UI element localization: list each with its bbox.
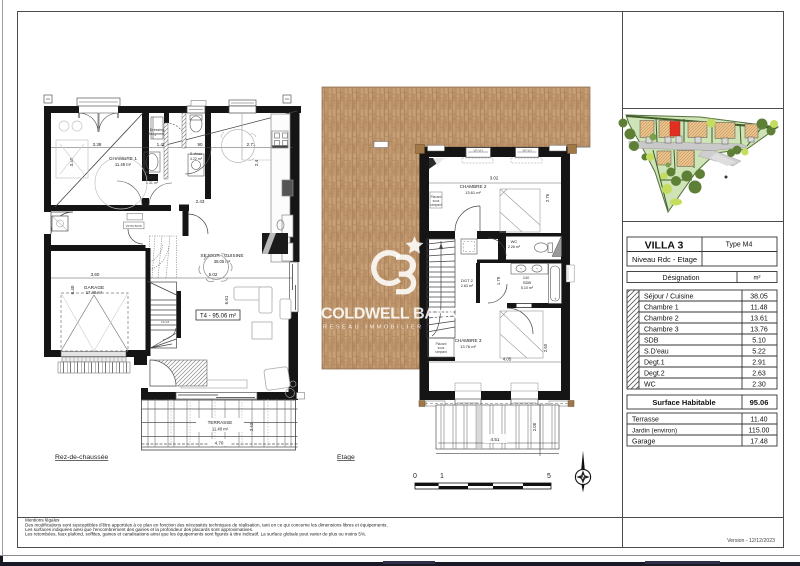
svg-text:Degt.1: Degt.1 xyxy=(644,359,665,366)
svg-text:2.26 m²: 2.26 m² xyxy=(508,245,521,249)
svg-text:Chambre 3: Chambre 3 xyxy=(644,326,679,333)
svg-text:13.61: 13.61 xyxy=(750,315,768,322)
svg-text:2.43: 2.43 xyxy=(196,199,205,204)
svg-text:13.61 m²: 13.61 m² xyxy=(465,190,481,195)
svg-text:CHAMBRE 2: CHAMBRE 2 xyxy=(460,184,487,189)
svg-text:VILLA 3: VILLA 3 xyxy=(645,240,684,252)
svg-text:2.63: 2.63 xyxy=(752,370,766,377)
svg-text:m²: m² xyxy=(754,276,761,282)
svg-text:11.48 m²: 11.48 m² xyxy=(115,162,132,167)
svg-text:Garage: Garage xyxy=(632,438,655,445)
svg-text:WC: WC xyxy=(511,239,518,244)
svg-text:WC: WC xyxy=(644,381,656,388)
svg-text:+: + xyxy=(520,267,522,271)
svg-text:11.40: 11.40 xyxy=(751,416,768,423)
svg-text:3.02: 3.02 xyxy=(490,176,499,181)
svg-text:Chambre 1: Chambre 1 xyxy=(644,304,679,311)
svg-text:Type M4: Type M4 xyxy=(726,242,753,249)
svg-text:DGT 2: DGT 2 xyxy=(461,278,473,283)
svg-text:RESEAU IMMOBILIER: RESEAU IMMOBILIER xyxy=(323,324,424,330)
svg-text:Séjour / Cuisine: Séjour / Cuisine xyxy=(644,293,694,300)
svg-text:Jardin (environ): Jardin (environ) xyxy=(632,427,677,434)
svg-text:3.38: 3.38 xyxy=(93,142,102,147)
svg-text:CHAMBRE 3: CHAMBRE 3 xyxy=(455,338,482,343)
svg-text:16x18: 16x18 xyxy=(161,320,170,324)
svg-text:2.4: 2.4 xyxy=(254,159,259,166)
svg-text:2.63 m²: 2.63 m² xyxy=(461,284,474,288)
svg-text:17.48: 17.48 xyxy=(750,438,768,445)
svg-text:1.31 m²: 1.31 m² xyxy=(146,181,159,185)
svg-text:T4 - 95.06 m²: T4 - 95.06 m² xyxy=(200,314,236,320)
svg-text:115.00: 115.00 xyxy=(749,427,770,434)
svg-text:6.40: 6.40 xyxy=(70,285,75,294)
svg-text:2.60: 2.60 xyxy=(543,343,548,352)
svg-text:4.22 m²: 4.22 m² xyxy=(190,157,203,161)
svg-text:11.48: 11.48 xyxy=(751,304,768,311)
svg-text:5.10: 5.10 xyxy=(752,337,766,344)
svg-text:13.76: 13.76 xyxy=(750,326,768,333)
svg-text:3.60: 3.60 xyxy=(91,272,100,277)
svg-text:Terrasse: Terrasse xyxy=(632,416,659,423)
svg-text:SDB: SDB xyxy=(523,280,532,285)
svg-text:13.76 m²: 13.76 m² xyxy=(460,344,476,349)
svg-text:Les retombées, faux plafond, s: Les retombées, faux plafond, soffites, g… xyxy=(25,532,366,537)
svg-text:6.61: 6.61 xyxy=(224,295,229,304)
svg-text:Désignation: Désignation xyxy=(663,275,700,282)
svg-text:Degt.2: Degt.2 xyxy=(644,370,665,377)
svg-text:Chambre 2: Chambre 2 xyxy=(644,315,679,322)
svg-text:Rez-de-chaussée: Rez-de-chaussée xyxy=(55,454,108,461)
svg-text:4.51: 4.51 xyxy=(491,437,500,442)
svg-text:TERRASSE: TERRASSE xyxy=(208,420,233,425)
svg-text:N: N xyxy=(581,476,585,482)
svg-text:Rangement: Rangement xyxy=(148,132,167,136)
svg-text:VP 80 BOIS: VP 80 BOIS xyxy=(126,224,142,228)
svg-text:2.00: 2.00 xyxy=(532,422,537,431)
svg-text:3.60: 3.60 xyxy=(523,276,530,280)
svg-text:4.05: 4.05 xyxy=(503,357,512,362)
svg-text:5.02: 5.02 xyxy=(209,272,218,277)
svg-text:5.22: 5.22 xyxy=(752,348,766,355)
svg-text:38.05: 38.05 xyxy=(750,293,768,300)
svg-text:4.70: 4.70 xyxy=(215,441,224,446)
svg-text:2.30: 2.30 xyxy=(752,381,766,388)
svg-text:2.76: 2.76 xyxy=(545,193,550,202)
svg-text:Version - 12/12/2023: Version - 12/12/2023 xyxy=(727,538,775,544)
svg-text:VR VH: VR VH xyxy=(522,149,531,153)
svg-text:95.06: 95.06 xyxy=(750,398,769,407)
svg-text:5.10 m²: 5.10 m² xyxy=(521,286,534,290)
svg-text:17.48 m²: 17.48 m² xyxy=(86,290,103,295)
svg-text:5: 5 xyxy=(547,473,551,480)
svg-text:S-d'eau: S-d'eau xyxy=(190,152,202,156)
svg-text:+: + xyxy=(554,297,557,302)
svg-text:+: + xyxy=(536,267,538,271)
svg-text:Surface Habitable: Surface Habitable xyxy=(652,398,715,407)
svg-text:1: 1 xyxy=(440,473,444,480)
svg-text:1.79: 1.79 xyxy=(496,276,501,285)
svg-text:DGT 1: DGT 1 xyxy=(147,176,158,180)
svg-text:SDB: SDB xyxy=(644,337,659,344)
svg-text:COLDWELL BANKER: COLDWELL BANKER xyxy=(321,306,480,323)
svg-text:2.91: 2.91 xyxy=(752,359,766,366)
svg-text:90: 90 xyxy=(197,142,203,147)
svg-text:Etage: Etage xyxy=(337,454,355,461)
svg-text:2.43: 2.43 xyxy=(249,422,254,431)
svg-text:VR VH: VR VH xyxy=(473,149,482,153)
svg-text:0: 0 xyxy=(413,473,417,480)
svg-text:S.D'eau: S.D'eau xyxy=(644,348,669,355)
svg-text:11.40 m²: 11.40 m² xyxy=(212,427,229,432)
svg-text:rampant: rampant xyxy=(435,350,447,354)
svg-text:Niveau Rdc - Etage: Niveau Rdc - Etage xyxy=(632,255,697,264)
svg-text:rampant: rampant xyxy=(430,203,442,207)
